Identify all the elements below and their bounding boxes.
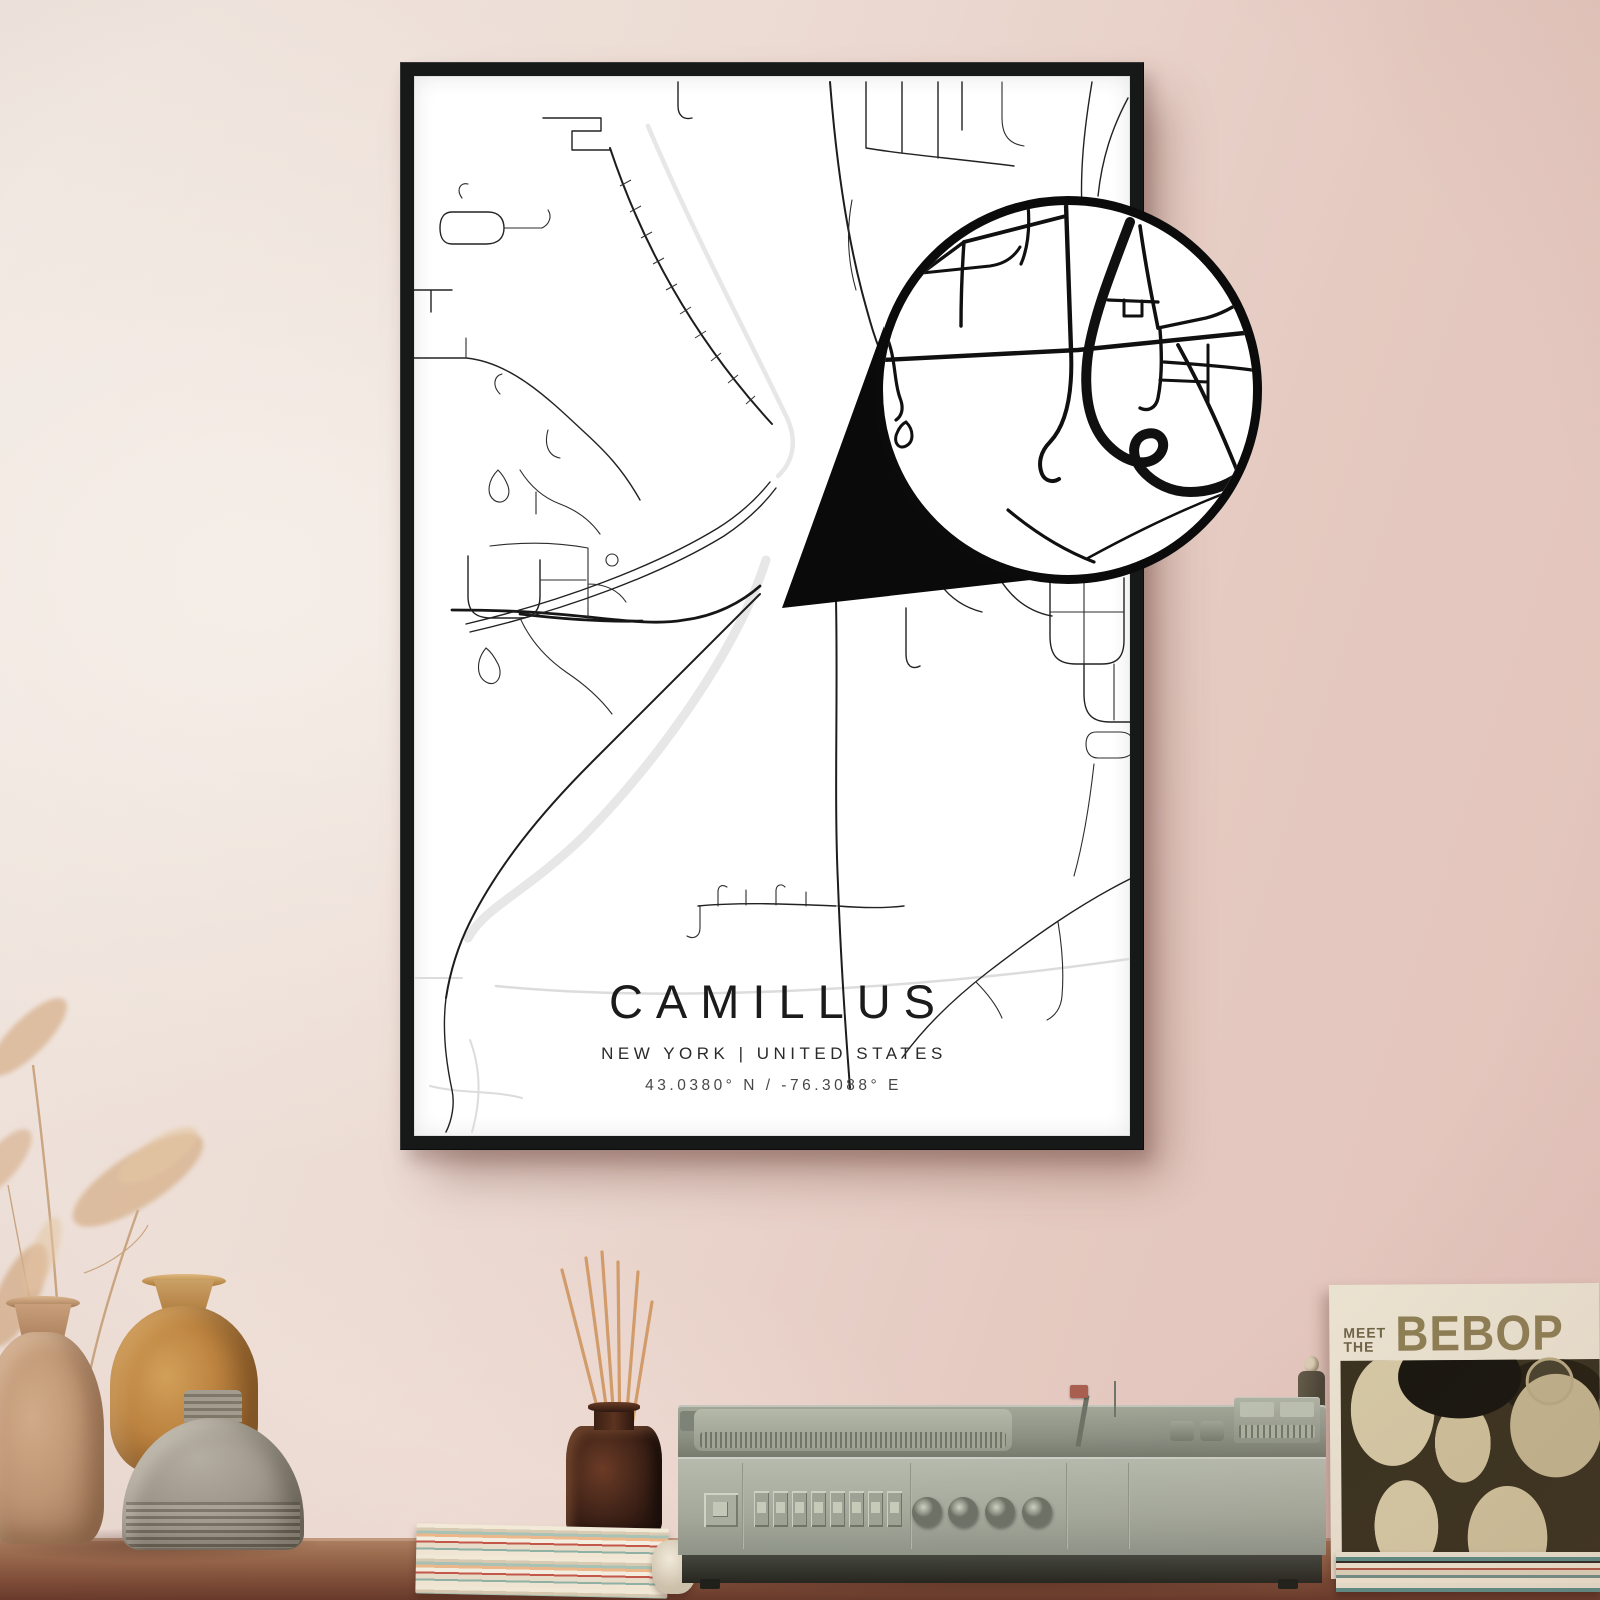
volume-knob <box>912 1497 942 1527</box>
antenna <box>1114 1381 1116 1417</box>
deck-knob <box>1170 1421 1194 1441</box>
control-unit <box>1234 1397 1320 1443</box>
preset-button <box>830 1491 845 1527</box>
tonearm-head <box>1070 1385 1088 1398</box>
preset-button <box>887 1491 902 1527</box>
preset-button-row <box>754 1491 902 1527</box>
diffuser-bottle <box>566 1426 662 1540</box>
panel-divider <box>1066 1463 1068 1549</box>
diffuser-bottle-lip <box>588 1402 640 1412</box>
deck-knob <box>1200 1421 1224 1441</box>
album-title-main: BEBOP <box>1395 1310 1564 1356</box>
album-badge <box>1525 1357 1573 1405</box>
magnifier-detail-map <box>883 205 1253 575</box>
album-title-meet: MEET <box>1343 1325 1386 1340</box>
magazine-stack <box>415 1523 668 1598</box>
player-foot <box>700 1579 720 1589</box>
poster-caption: CAMILLUS NEW YORK | UNITED STATES 43.038… <box>414 974 1130 1095</box>
flat-record-stack <box>1336 1552 1600 1592</box>
room-scene: CAMILLUS NEW YORK | UNITED STATES 43.038… <box>0 0 1600 1600</box>
album-title: MEET THE BEBOP <box>1343 1295 1599 1355</box>
player-front-panel <box>678 1457 1326 1555</box>
magnifier-circle <box>874 196 1262 584</box>
control-pad <box>1280 1402 1314 1417</box>
turntable-platter <box>694 1409 1012 1451</box>
poster-subtitle: NEW YORK | UNITED STATES <box>414 1044 1130 1064</box>
balance-knob <box>985 1497 1015 1527</box>
player-base <box>682 1555 1322 1583</box>
tonearm-rod <box>1076 1395 1090 1447</box>
tonearm <box>1066 1389 1106 1449</box>
album-title-the: THE <box>1343 1340 1386 1355</box>
poster-title: CAMILLUS <box>414 974 1130 1029</box>
preset-button <box>868 1491 883 1527</box>
preset-button <box>849 1491 864 1527</box>
tuning-knob <box>1022 1497 1052 1527</box>
album-cover: MEET THE BEBOP <box>1329 1283 1600 1579</box>
record-player <box>678 1405 1326 1583</box>
panel-divider <box>910 1463 912 1549</box>
preset-button <box>754 1491 769 1527</box>
panel-divider <box>1128 1463 1130 1549</box>
power-button <box>704 1493 738 1527</box>
control-pad <box>1240 1402 1274 1417</box>
poster-coordinates: 43.0380° N / -76.3088° E <box>414 1077 1130 1095</box>
preset-button <box>811 1491 826 1527</box>
gray-vase-body <box>122 1418 304 1550</box>
preset-button <box>792 1491 807 1527</box>
panel-divider <box>742 1463 744 1549</box>
player-foot <box>1278 1579 1298 1589</box>
album-title-small: MEET THE <box>1343 1325 1386 1355</box>
player-top-deck <box>678 1405 1326 1457</box>
tan-vase <box>0 1292 108 1548</box>
tan-vase-body <box>0 1332 104 1544</box>
preset-button <box>773 1491 788 1527</box>
tone-knob <box>948 1497 978 1527</box>
gray-vase <box>122 1390 304 1550</box>
